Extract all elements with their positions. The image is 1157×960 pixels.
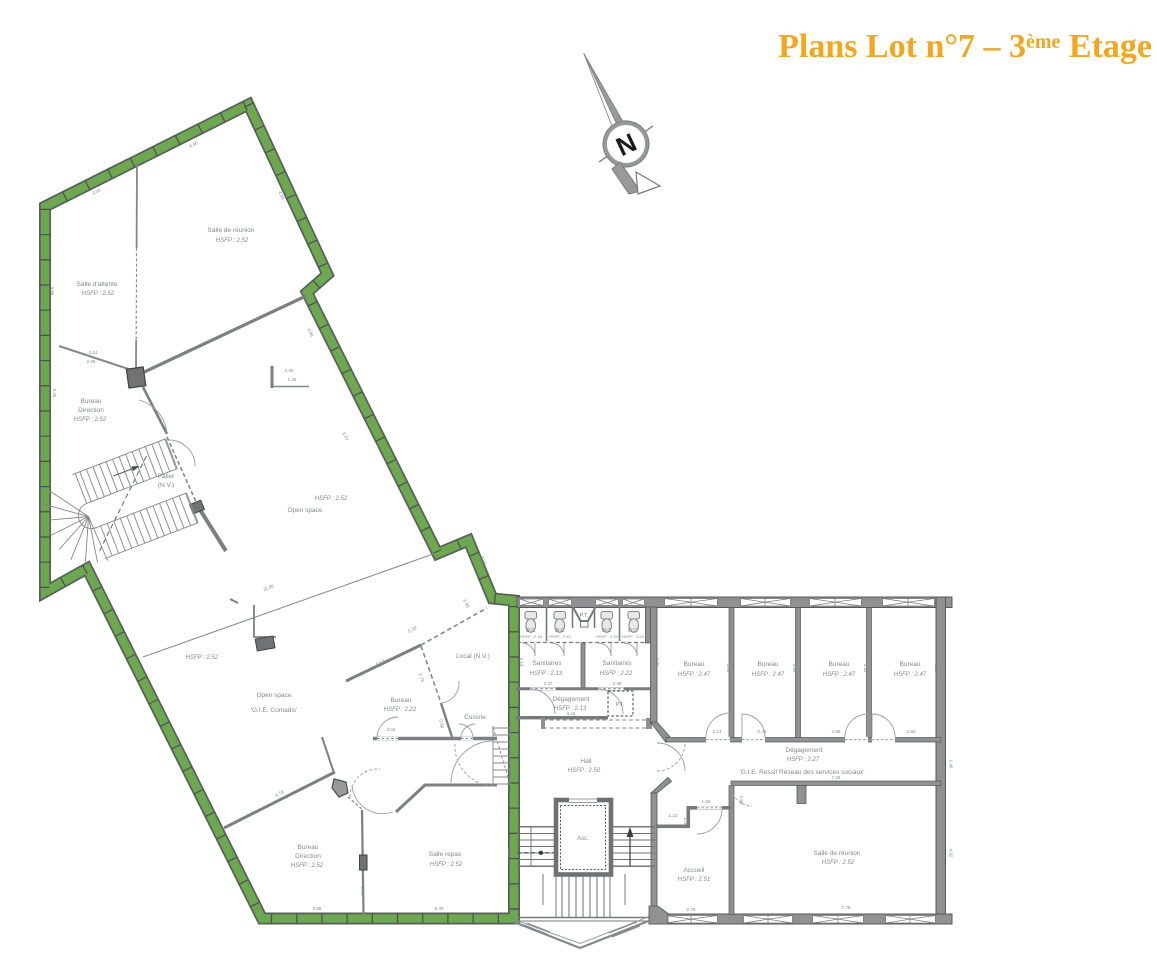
svg-text:(N.V.): (N.V.) [158,482,174,489]
svg-text:2.14: 2.14 [713,729,722,734]
svg-text:Asc.: Asc. [577,836,589,842]
svg-text:HSFP : 2.52: HSFP : 2.52 [822,860,855,866]
svg-text:Open space: Open space [287,507,322,514]
svg-text:Bureau: Bureau [829,661,850,668]
svg-text:Dégagement: Dégagement [785,747,822,754]
svg-text:5.25: 5.25 [52,389,57,398]
svg-text:Hall: Hall [580,758,592,765]
svg-text:'G.I.E. Ressif Réseau des serv: 'G.I.E. Ressif Réseau des services socia… [740,769,865,776]
svg-text:3.89: 3.89 [934,664,939,673]
svg-text:'G.I.E. Comadis': 'G.I.E. Comadis' [251,707,298,714]
svg-text:Sanitaires: Sanitaires [533,660,563,667]
svg-text:2.22: 2.22 [655,658,660,667]
svg-text:2.48: 2.48 [613,681,622,686]
svg-text:Salle de réunion: Salle de réunion [208,227,255,234]
svg-text:Bureau: Bureau [900,661,921,668]
svg-text:HSFP : 2.52: HSFP : 2.52 [315,496,348,502]
svg-text:Salle de réunion: Salle de réunion [814,850,861,857]
svg-text:Bureau: Bureau [391,697,412,704]
svg-text:2.58: 2.58 [832,729,841,734]
svg-text:HSFP : 2.40: HSFP : 2.40 [549,634,571,639]
svg-text:Direction: Direction [78,407,104,414]
svg-text:HSFP : 2.18: HSFP : 2.18 [520,634,542,639]
svg-text:4.92: 4.92 [949,849,954,858]
svg-text:HSFP : 2.51: HSFP : 2.51 [678,877,710,883]
svg-text:3.89: 3.89 [863,664,868,673]
svg-text:Cuisine: Cuisine [464,714,486,721]
svg-text:1.46: 1.46 [288,377,297,382]
svg-text:Bureau: Bureau [298,844,319,851]
svg-text:HSFP : 2.50: HSFP : 2.50 [622,634,644,639]
svg-text:HSFP : 2.22: HSFP : 2.22 [384,707,417,713]
svg-text:HSFP : 2.52: HSFP : 2.52 [291,863,324,869]
svg-text:HSFP : 2.52: HSFP : 2.52 [216,238,249,244]
svg-text:HSFP : 2.47: HSFP : 2.47 [752,672,785,678]
svg-text:1.06: 1.06 [683,818,688,827]
svg-text:Palier: Palier [158,473,175,480]
svg-text:1.66: 1.66 [739,796,744,805]
svg-text:HSFP : 2.50: HSFP : 2.50 [568,768,601,774]
svg-text:1.55: 1.55 [702,799,711,804]
svg-text:Sanitaires: Sanitaires [603,660,633,667]
svg-text:5.40: 5.40 [435,906,444,911]
svg-text:2.08: 2.08 [87,359,96,364]
svg-text:Direction: Direction [295,853,321,860]
svg-text:1.23: 1.23 [669,813,678,818]
svg-text:2.40: 2.40 [285,368,294,373]
svg-text:2.76: 2.76 [687,907,696,912]
svg-text:2.80: 2.80 [907,729,916,734]
svg-text:Bureau: Bureau [81,398,102,405]
svg-text:HSFP : 2.47: HSFP : 2.47 [894,672,927,678]
svg-text:4.66: 4.66 [50,287,55,296]
svg-text:Bureau: Bureau [684,661,705,668]
svg-text:Dégagement: Dégagement [552,696,589,703]
svg-text:P.T.: P.T. [616,702,624,708]
svg-text:HSFP : 2.52: HSFP : 2.52 [74,417,107,423]
svg-text:Bureau: Bureau [758,661,779,668]
svg-text:HSFP : 2.52: HSFP : 2.52 [430,862,463,868]
svg-text:Accueil: Accueil [684,867,706,874]
svg-text:1.70: 1.70 [360,887,365,896]
svg-text:HSFP : 2.47: HSFP : 2.47 [678,672,711,678]
svg-text:3.04: 3.04 [387,727,396,732]
svg-text:P.T.: P.T. [580,613,589,619]
svg-text:2.14: 2.14 [89,350,98,355]
svg-text:7.26: 7.26 [832,775,841,780]
svg-text:Plans Lot n°7 – 3ème Etage: Plans Lot n°7 – 3ème Etage [778,28,1152,65]
svg-text:Local (N.V.): Local (N.V.) [456,653,490,660]
svg-text:3.89: 3.89 [726,664,731,673]
svg-text:2.47: 2.47 [544,681,553,686]
svg-text:HSFP : 2.22: HSFP : 2.22 [600,671,633,677]
svg-text:HSFP : 2.13: HSFP : 2.13 [530,671,563,677]
svg-text:HSFP : 2.27: HSFP : 2.27 [787,757,820,763]
svg-text:HSFP : 2.30: HSFP : 2.30 [596,634,618,639]
svg-text:HSFP : 2.52: HSFP : 2.52 [186,655,219,661]
svg-text:2.42: 2.42 [758,729,767,734]
svg-text:3.44: 3.44 [567,711,576,716]
svg-text:7.76: 7.76 [842,905,851,910]
svg-text:3.89: 3.89 [792,664,797,673]
svg-text:Salle d'attente: Salle d'attente [77,281,118,288]
svg-text:1.46: 1.46 [949,760,954,769]
svg-text:Salle repas: Salle repas [429,851,462,858]
svg-text:HSFP : 2.52: HSFP : 2.52 [82,291,115,297]
svg-text:Open space: Open space [256,692,291,699]
svg-text:4.25: 4.25 [507,849,512,858]
svg-text:2.13: 2.13 [519,658,524,667]
svg-text:HSFP : 2.47: HSFP : 2.47 [823,672,856,678]
svg-text:3.58: 3.58 [313,906,322,911]
